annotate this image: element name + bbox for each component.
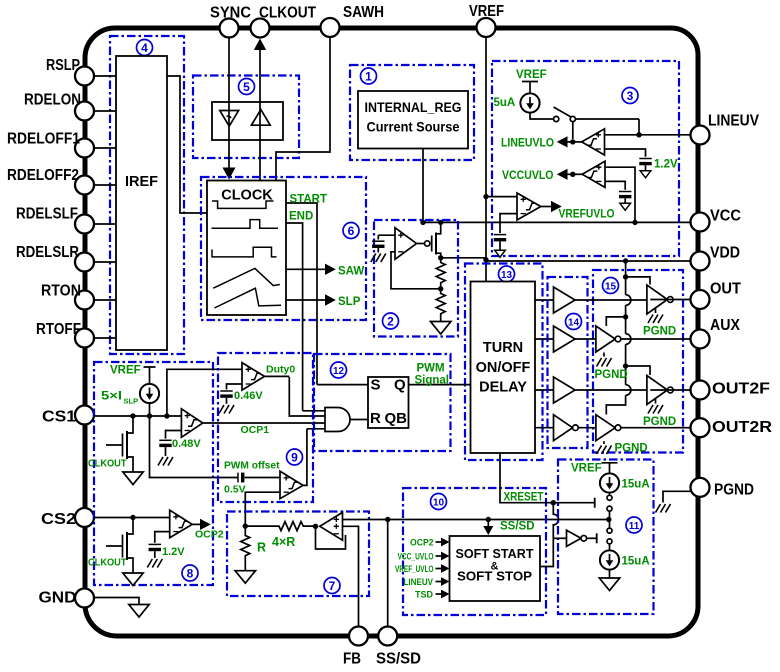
svg-text:PGND: PGND [643, 326, 676, 338]
svg-text:0.5V: 0.5V [224, 484, 246, 496]
svg-text:10: 10 [433, 497, 445, 508]
svg-text:CS2: CS2 [41, 511, 76, 528]
svg-text:TURN: TURN [483, 340, 523, 356]
svg-text:15uA: 15uA [622, 556, 650, 568]
svg-text:QB: QB [385, 410, 408, 427]
svg-text:SLP: SLP [338, 296, 361, 308]
svg-text:XRESET: XRESET [504, 492, 544, 504]
svg-text:SLP: SLP [124, 397, 139, 406]
svg-text:15: 15 [605, 281, 617, 292]
svg-text:CLKOUT: CLKOUT [259, 5, 316, 22]
svg-text:SAWH: SAWH [343, 4, 384, 21]
svg-text:VREF_UVLO: VREF_UVLO [395, 564, 434, 574]
svg-text:VDD: VDD [710, 245, 740, 262]
svg-text:CLKOUT: CLKOUT [88, 458, 127, 470]
svg-text:VCC_UVLO: VCC_UVLO [398, 551, 434, 561]
svg-text:4×R: 4×R [272, 535, 295, 549]
svg-text:SOFT STOP: SOFT STOP [457, 569, 532, 584]
svg-text:VCC: VCC [710, 208, 741, 225]
svg-text:12: 12 [333, 366, 345, 377]
svg-text:INTERNAL_REG: INTERNAL_REG [365, 100, 462, 115]
svg-text:VCCUVLO: VCCUVLO [502, 170, 554, 182]
svg-text:OCP2: OCP2 [195, 529, 224, 541]
svg-text:3: 3 [627, 89, 634, 103]
svg-text:SS/SD: SS/SD [376, 651, 421, 668]
svg-text:Duty0: Duty0 [266, 364, 295, 376]
svg-text:RSLP: RSLP [46, 57, 80, 74]
svg-text:END: END [289, 211, 313, 223]
svg-text:RDELOFF1: RDELOFF1 [7, 131, 80, 148]
svg-text:7: 7 [329, 579, 336, 593]
svg-text:OUT: OUT [710, 281, 742, 298]
svg-text:1.2V: 1.2V [654, 159, 678, 171]
svg-text:Q: Q [394, 377, 406, 394]
svg-text:R: R [257, 541, 266, 555]
svg-text:VREF: VREF [516, 69, 547, 81]
svg-text:S: S [371, 377, 381, 394]
svg-text:SOFT START: SOFT START [456, 546, 534, 561]
svg-text:R: R [370, 410, 381, 427]
svg-text:4: 4 [141, 41, 148, 55]
svg-text:LINEUVLO: LINEUVLO [501, 138, 554, 150]
svg-text:9: 9 [291, 450, 298, 464]
svg-text:VREF: VREF [571, 463, 602, 475]
svg-text:PGND: PGND [714, 482, 754, 499]
svg-text:PGND: PGND [615, 443, 648, 455]
svg-text:15uA: 15uA [622, 479, 650, 491]
svg-text:Current Sourse: Current Sourse [367, 120, 460, 135]
svg-text:11: 11 [629, 521, 640, 532]
svg-text:IREF: IREF [125, 174, 158, 190]
svg-text:PGND: PGND [643, 416, 676, 428]
svg-text:Signal: Signal [415, 375, 450, 387]
svg-text:CLKOUT: CLKOUT [88, 557, 127, 569]
svg-text:OCP2: OCP2 [410, 537, 434, 547]
svg-text:0.46V: 0.46V [234, 390, 263, 402]
svg-text:LINEUV: LINEUV [404, 577, 434, 587]
svg-text:13: 13 [501, 270, 513, 281]
svg-text:0.48V: 0.48V [172, 438, 201, 450]
svg-text:OCP1: OCP1 [241, 424, 270, 436]
svg-text:OUT2F: OUT2F [712, 381, 770, 398]
svg-text:5×I: 5×I [101, 391, 122, 403]
svg-text:GND: GND [39, 590, 77, 607]
svg-text:8: 8 [187, 566, 194, 580]
svg-text:AUX: AUX [710, 317, 741, 334]
svg-text:START: START [290, 194, 327, 206]
svg-text:OUT2R: OUT2R [712, 419, 772, 436]
svg-text:PWM: PWM [417, 363, 445, 375]
svg-text:FB: FB [343, 651, 361, 668]
svg-text:RDELSLF: RDELSLF [16, 206, 78, 223]
svg-text:PGND: PGND [595, 369, 628, 381]
svg-text:6: 6 [348, 224, 355, 238]
svg-text:TSD: TSD [415, 589, 434, 599]
svg-text:RTOFF: RTOFF [36, 321, 81, 338]
svg-text:1: 1 [365, 69, 372, 83]
svg-text:VREF: VREF [110, 365, 141, 377]
svg-text:5uA: 5uA [494, 97, 516, 109]
svg-text:LINEUV: LINEUV [708, 113, 760, 130]
svg-text:RDELSLR: RDELSLR [16, 244, 79, 261]
svg-text:14: 14 [568, 317, 580, 328]
svg-text:VREFUVLO: VREFUVLO [559, 209, 615, 221]
svg-text:ON/OFF: ON/OFF [476, 360, 531, 376]
svg-text:5: 5 [243, 80, 250, 94]
svg-text:SS/SD: SS/SD [500, 521, 535, 533]
svg-text:SAW: SAW [338, 265, 364, 277]
svg-text:SYNC: SYNC [210, 5, 251, 22]
svg-text:RTON: RTON [41, 283, 81, 300]
svg-text:DELAY: DELAY [479, 380, 527, 396]
svg-text:RDELOFF2: RDELOFF2 [7, 167, 79, 184]
svg-text:PWM offset: PWM offset [224, 460, 280, 472]
svg-text:VREF: VREF [469, 3, 504, 20]
svg-text:1.2V: 1.2V [162, 546, 185, 558]
svg-text:2: 2 [387, 314, 394, 328]
svg-text:CS1: CS1 [42, 409, 76, 426]
svg-text:RDELON: RDELON [24, 92, 81, 109]
